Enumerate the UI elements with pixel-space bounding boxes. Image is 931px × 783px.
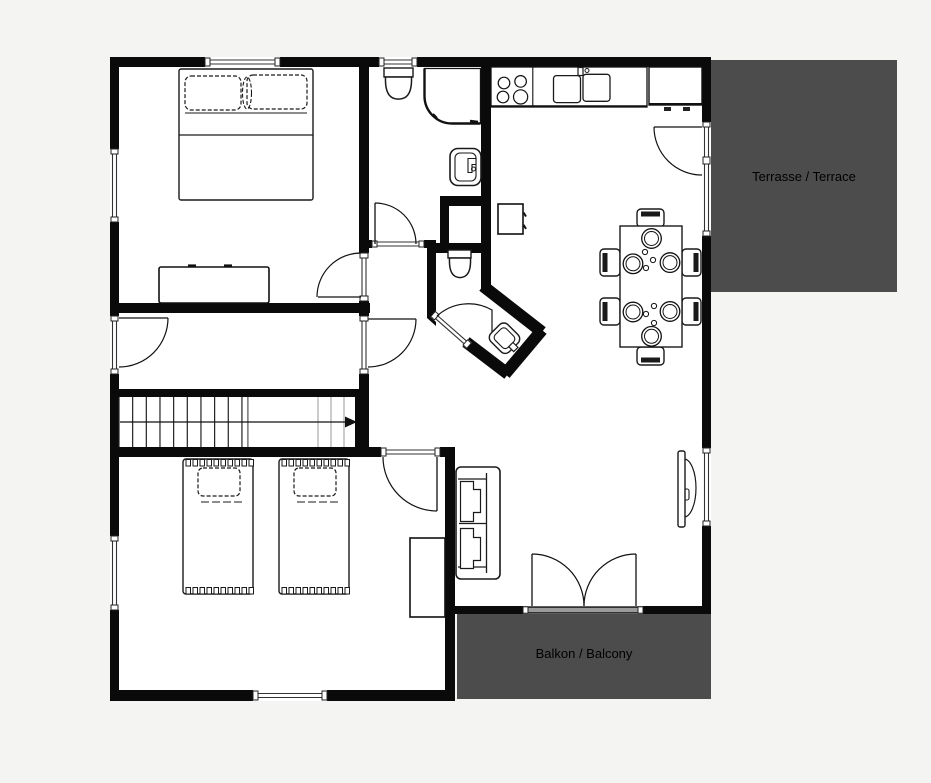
svg-text:Terrasse / Terrace: Terrasse / Terrace bbox=[752, 169, 856, 184]
svg-text:Balkon / Balcony: Balkon / Balcony bbox=[536, 646, 633, 661]
